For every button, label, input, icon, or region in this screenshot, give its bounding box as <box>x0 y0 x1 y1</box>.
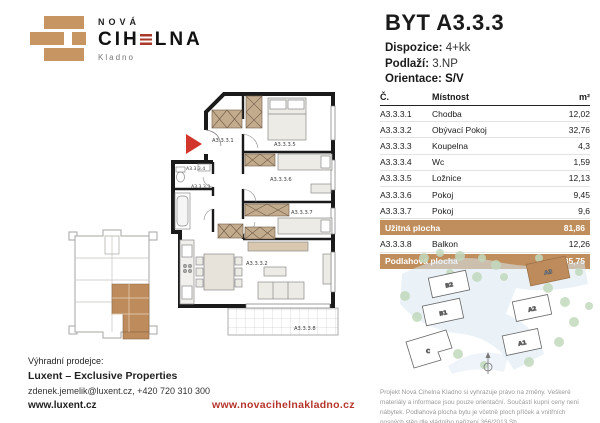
table-row: A3.3.3.3 Koupelna 4,3 <box>380 138 590 154</box>
table-body: A3.3.3.1 Chodba 12,02 A3.3.3.2 Obývací P… <box>380 106 590 219</box>
table-header-row: Č. Místnost m² <box>380 90 590 106</box>
svg-text:C: C <box>426 349 430 355</box>
seller-name: Luxent – Exclusive Properties <box>28 370 210 382</box>
unit-title: BYT A3.3.3 <box>385 10 590 36</box>
table-row: A3.3.3.4 Wc 1,59 <box>380 155 590 171</box>
seller-contact[interactable]: zdenek.jemelik@luxent.cz, +420 720 310 3… <box>28 386 210 396</box>
seller-heading: Výhradní prodejce: <box>28 356 210 366</box>
flyer-page: NOVÁ CIHLNA Kladno BYT A3.3.3 Dispozice:… <box>0 0 600 423</box>
usable-area-row: Užitná plocha 81,86 <box>380 220 590 235</box>
brick-e-icon <box>140 34 152 47</box>
unit-detail-podlazi: Podlaží: 3.NP <box>385 58 590 70</box>
building-c: C <box>406 330 452 368</box>
table-row: A3.3.3.7 Pokoj 9,6 <box>380 203 590 219</box>
svg-text:A3.3.3.8: A3.3.3.8 <box>294 326 316 332</box>
brand-top-line: NOVÁ <box>98 17 203 27</box>
brick-logo-icon <box>30 16 86 63</box>
brand-logo: NOVÁ CIHLNA Kladno <box>30 16 203 63</box>
svg-text:A3.3.3.1: A3.3.3.1 <box>212 138 234 144</box>
svg-text:A3.3.3.5: A3.3.3.5 <box>274 142 296 148</box>
site-plan: B2 B1 A2 A1 C A3 <box>388 246 600 376</box>
floor-overview-plan <box>63 228 163 340</box>
unit-header: BYT A3.3.3 Dispozice: 4+kk Podlaží: 3.NP… <box>385 10 590 85</box>
room-area-table: Č. Místnost m² A3.3.3.1 Chodba 12,02 A3.… <box>380 90 590 270</box>
brand-city: Kladno <box>98 53 203 62</box>
seller-website-link[interactable]: www.luxent.cz <box>28 400 210 411</box>
building-a2: A2 <box>512 294 551 321</box>
brand-main-line: CIHLNA <box>98 29 203 51</box>
unit-detail-dispozice: Dispozice: 4+kk <box>385 42 590 54</box>
svg-text:A3.3.3.2: A3.3.3.2 <box>246 261 268 267</box>
disclaimer-text: Projekt Nová Cihelna Kladno si vyhrazuje… <box>380 388 588 423</box>
table-row: A3.3.3.6 Pokoj 9,45 <box>380 187 590 203</box>
brand-wordmark: NOVÁ CIHLNA Kladno <box>98 17 203 62</box>
entrance-arrow-icon <box>186 134 202 154</box>
svg-text:A3.3.3.6: A3.3.3.6 <box>270 177 292 183</box>
table-row: A3.3.3.5 Ložnice 12,13 <box>380 171 590 187</box>
svg-text:A3.3.3.4: A3.3.3.4 <box>186 166 205 172</box>
balcony-area <box>228 308 338 335</box>
project-website-link[interactable]: www.novacihelnakladno.cz <box>212 399 362 411</box>
unit-detail-orientace: Orientace: S/V <box>385 73 590 85</box>
table-row: A3.3.3.2 Obývací Pokoj 32,76 <box>380 122 590 138</box>
seller-block: Výhradní prodejce: Luxent – Exclusive Pr… <box>28 356 210 411</box>
svg-text:A3.3.3.3: A3.3.3.3 <box>191 184 210 190</box>
table-row: A3.3.3.1 Chodba 12,02 <box>380 106 590 122</box>
svg-text:A3.3.3.7: A3.3.3.7 <box>291 210 313 216</box>
